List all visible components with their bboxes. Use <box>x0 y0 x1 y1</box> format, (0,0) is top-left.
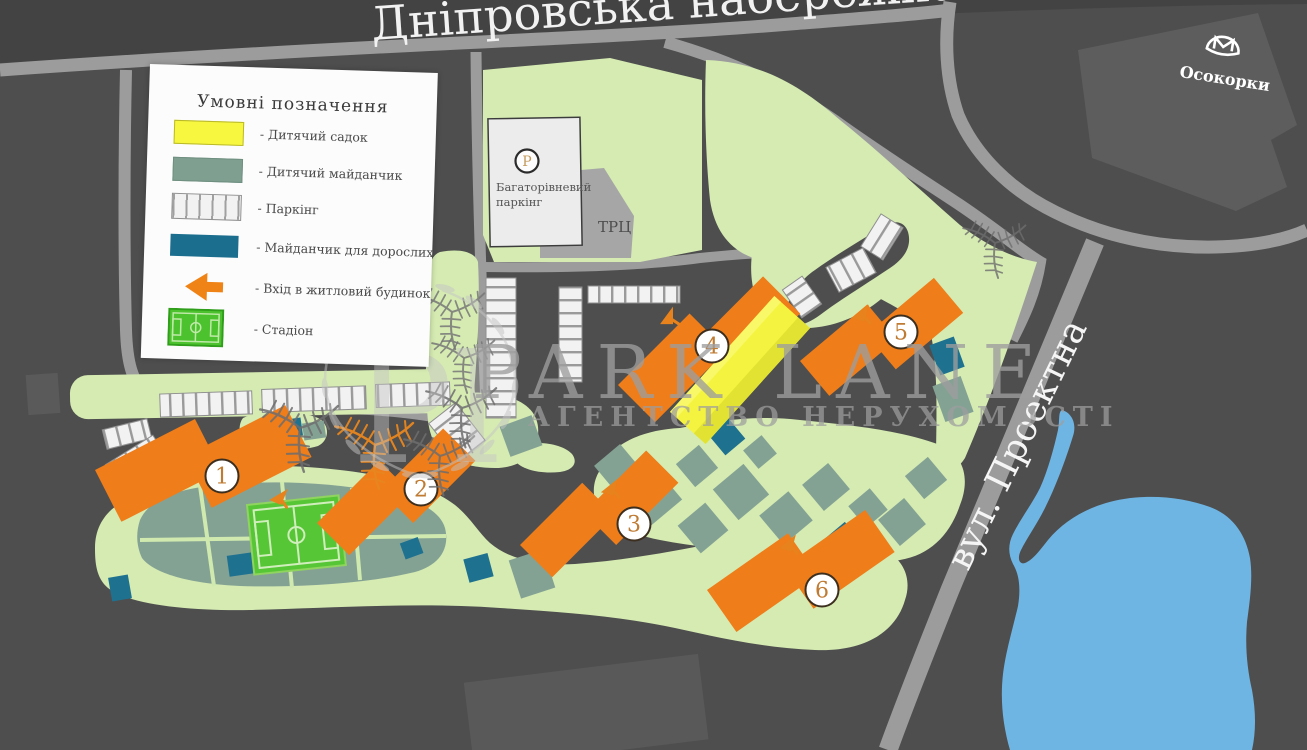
legend-item-label: - Дитячий майданчик <box>258 163 402 183</box>
svg-text:6: 6 <box>815 579 829 604</box>
parking-label-line2: паркінг <box>496 195 542 209</box>
site-plan: Р Багаторівневий паркінг ТРЦ 1 2 3 4 5 6 <box>0 0 1307 750</box>
parking-swatch-icon <box>171 192 242 220</box>
legend-item-kindergarten: - Дитячий садок <box>173 115 436 156</box>
legend-item-label: - Вхід в житловий будинок <box>255 280 431 301</box>
legend-item-label: - Паркінг <box>257 200 319 217</box>
building-6-badge[interactable]: 6 <box>806 574 839 607</box>
legend-item-kids-playground: - Дитячий майданчик <box>172 152 435 193</box>
watermark-tagline: АГЕНТСТВО НЕРУХОМОСТІ <box>528 402 1120 433</box>
background-building <box>26 373 61 415</box>
svg-text:1: 1 <box>215 465 229 490</box>
legend-item-label: - Стадіон <box>253 321 313 338</box>
adult-playground-swatch-icon <box>170 233 239 257</box>
parking-row <box>160 391 253 417</box>
mall-label: ТРЦ <box>598 218 631 236</box>
legend-item-label: - Майданчик для дорослих <box>256 239 434 260</box>
entrance-arrow-legend-icon <box>185 271 226 302</box>
legend-item-entrance: - Вхід в житловий будинок <box>168 267 431 312</box>
parking-row <box>262 386 367 413</box>
legend-item-adult-playground: - Майданчик для дорослих <box>170 226 433 271</box>
adult-playground <box>227 552 256 576</box>
legend-item-label: - Дитячий садок <box>260 126 368 144</box>
legend-item-stadium: - Стадіон <box>167 308 430 353</box>
building-3-badge[interactable]: 3 <box>618 508 651 541</box>
parking-symbol: Р <box>522 154 531 170</box>
stadium-legend-icon <box>167 307 224 347</box>
legend-item-parking: - Паркінг <box>171 189 434 230</box>
legend-panel: Умовні позначення - Дитячий садок - Дитя… <box>141 64 438 367</box>
parking-row <box>588 286 680 303</box>
kindergarten-swatch-icon <box>174 119 245 145</box>
svg-text:3: 3 <box>627 513 641 538</box>
adult-playground <box>108 574 132 601</box>
kids-playground-swatch-icon <box>172 156 243 182</box>
parking-label-line1: Багаторівневий <box>496 180 592 194</box>
building-1-badge[interactable]: 1 <box>206 460 239 493</box>
